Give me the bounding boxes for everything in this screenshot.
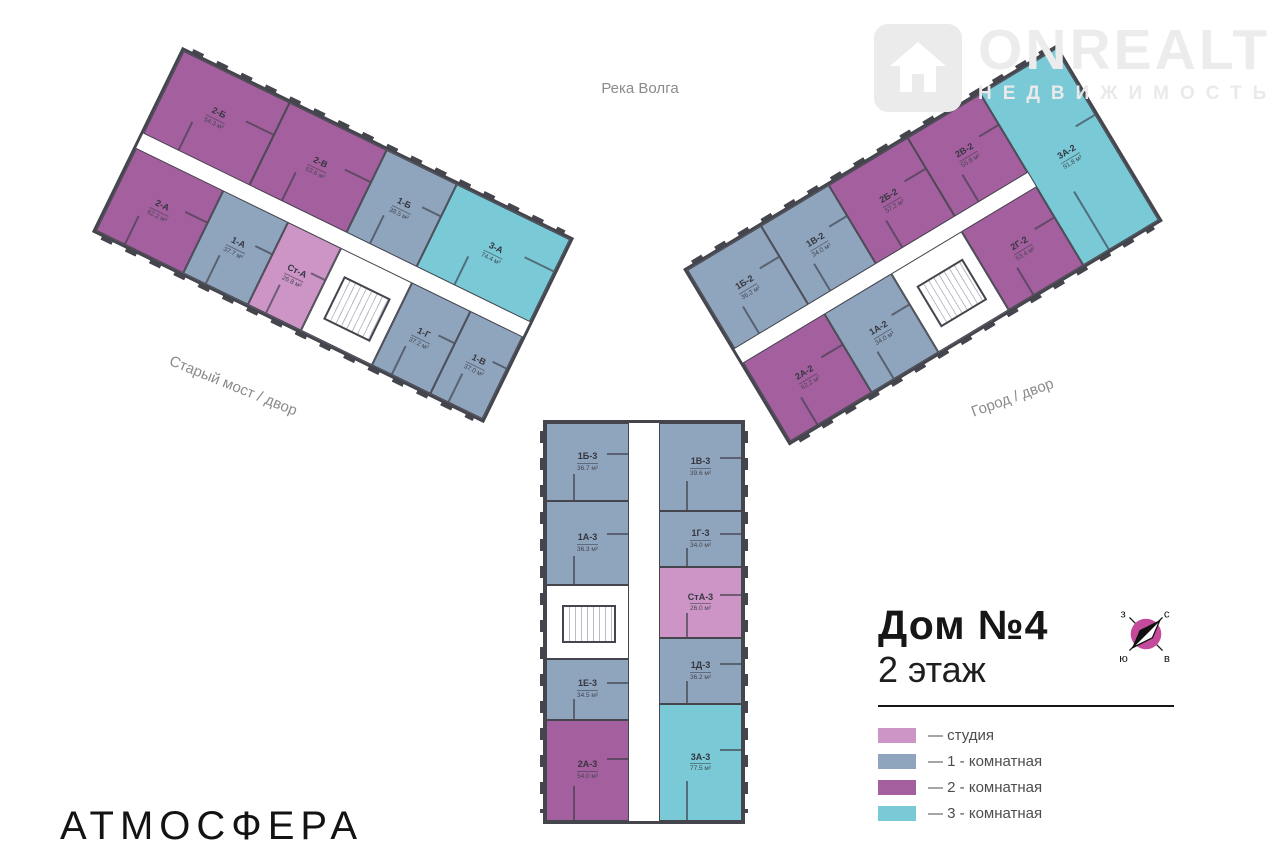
unit-id: 1Е-3	[578, 679, 597, 689]
legend-item-1room: — 1 - комнатная	[878, 753, 1178, 770]
building-right: 1Б-236.2 м²1В-234.0 м²2Б-257.2 м²2В-255.…	[683, 44, 1163, 445]
unit-1А-3: 1А-336.3 м²	[546, 501, 629, 585]
unit-СтА-3: СтА-326.0 м²	[659, 567, 742, 637]
svg-text:ю: ю	[1119, 653, 1128, 662]
unit-label: 3А-377.5 м²	[660, 705, 741, 820]
onrealt-house-icon	[872, 22, 964, 114]
unit-label: СтА-326.0 м²	[660, 568, 741, 636]
unit-area: 77.5 м²	[690, 763, 711, 772]
unit-area: 54.0 м²	[577, 771, 598, 780]
svg-text:в: в	[1164, 653, 1170, 662]
compass-icon: з с ю в	[1118, 606, 1174, 662]
unit-label: 1Г-334.0 м²	[660, 512, 741, 567]
unit-1Г-3: 1Г-334.0 м²	[659, 511, 742, 568]
unit-area: 34.0 м²	[690, 540, 711, 549]
unit-1В-3: 1В-339.6 м²	[659, 423, 742, 511]
street-label-right: Город / двор	[969, 375, 1056, 420]
legend-label-3room: — 3 - комнатная	[928, 805, 1042, 822]
legend-swatch-2room	[878, 780, 916, 795]
legend-item-studio: — студия	[878, 727, 1178, 744]
legend: — студия — 1 - комнатная — 2 - комнатная…	[878, 727, 1178, 822]
unit-label: 1Б-336.7 м²	[547, 424, 628, 500]
street-label-left: Старый мост / двор	[167, 353, 300, 420]
unit-area: 36.7 м²	[577, 463, 598, 472]
legend-swatch-studio	[878, 728, 916, 743]
unit-id: 1В-3	[691, 457, 711, 467]
unit-label: 2А-354.0 м²	[547, 721, 628, 820]
svg-text:с: с	[1164, 608, 1170, 620]
unit-label: 1Д-336.2 м²	[660, 639, 741, 703]
divider-line	[878, 705, 1174, 707]
unit-id: 2А-3	[578, 760, 598, 770]
unit-id: СтА-3	[688, 593, 713, 603]
legend-item-3room: — 3 - комнатная	[878, 805, 1178, 822]
legend-swatch-3room	[878, 806, 916, 821]
svg-text:з: з	[1121, 608, 1126, 620]
unit-area: 36.3 м²	[577, 544, 598, 553]
unit-id: 1А-3	[578, 533, 598, 543]
legend-item-2room: — 2 - комнатная	[878, 779, 1178, 796]
unit-column: 1В-339.6 м²1Г-334.0 м²СтА-326.0 м²1Д-336…	[659, 423, 742, 821]
unit-1Д-3: 1Д-336.2 м²	[659, 638, 742, 704]
unit-label: 1Е-334.5 м²	[547, 660, 628, 719]
unit-area: 34.5 м²	[577, 690, 598, 699]
developer-logo: АТМОСФЕРА	[60, 804, 363, 849]
unit-area: 36.2 м²	[690, 672, 711, 681]
unit-label: 1А-336.3 м²	[547, 502, 628, 584]
unit-area: 26.0 м²	[690, 603, 711, 612]
legend-label-1room: — 1 - комнатная	[928, 753, 1042, 770]
river-label: Река Волга	[555, 80, 725, 97]
unit-column: 1Б-336.7 м²1А-336.3 м²1Е-334.5 м²2А-354.…	[546, 423, 629, 821]
unit-1Е-3: 1Е-334.5 м²	[546, 659, 629, 720]
unit-label: 1В-339.6 м²	[660, 424, 741, 510]
unit-1Б-3: 1Б-336.7 м²	[546, 423, 629, 501]
floorplan-poster: 2-Б54.3 м²2-В53.6 м²1-Б38.5 м²3-А74.4 м²…	[0, 0, 1280, 855]
unit-id: 1Б-3	[578, 452, 597, 462]
building-bottom: 1Б-336.7 м²1А-336.3 м²1Е-334.5 м²2А-354.…	[543, 420, 745, 824]
legend-label-studio: — студия	[928, 727, 994, 744]
corridor	[629, 423, 659, 821]
unit-id: 3А-3	[691, 753, 711, 763]
legend-label-2room: — 2 - комнатная	[928, 779, 1042, 796]
building-left: 2-Б54.3 м²2-В53.6 м²1-Б38.5 м²3-А74.4 м²…	[92, 47, 574, 423]
unit-2А-3: 2А-354.0 м²	[546, 720, 629, 821]
unit-area: 39.6 м²	[690, 468, 711, 477]
stair-core	[546, 585, 629, 659]
unit-id: 1Г-3	[691, 529, 709, 539]
unit-id: 1Д-3	[691, 661, 710, 671]
legend-swatch-1room	[878, 754, 916, 769]
unit-3А-3: 3А-377.5 м²	[659, 704, 742, 821]
